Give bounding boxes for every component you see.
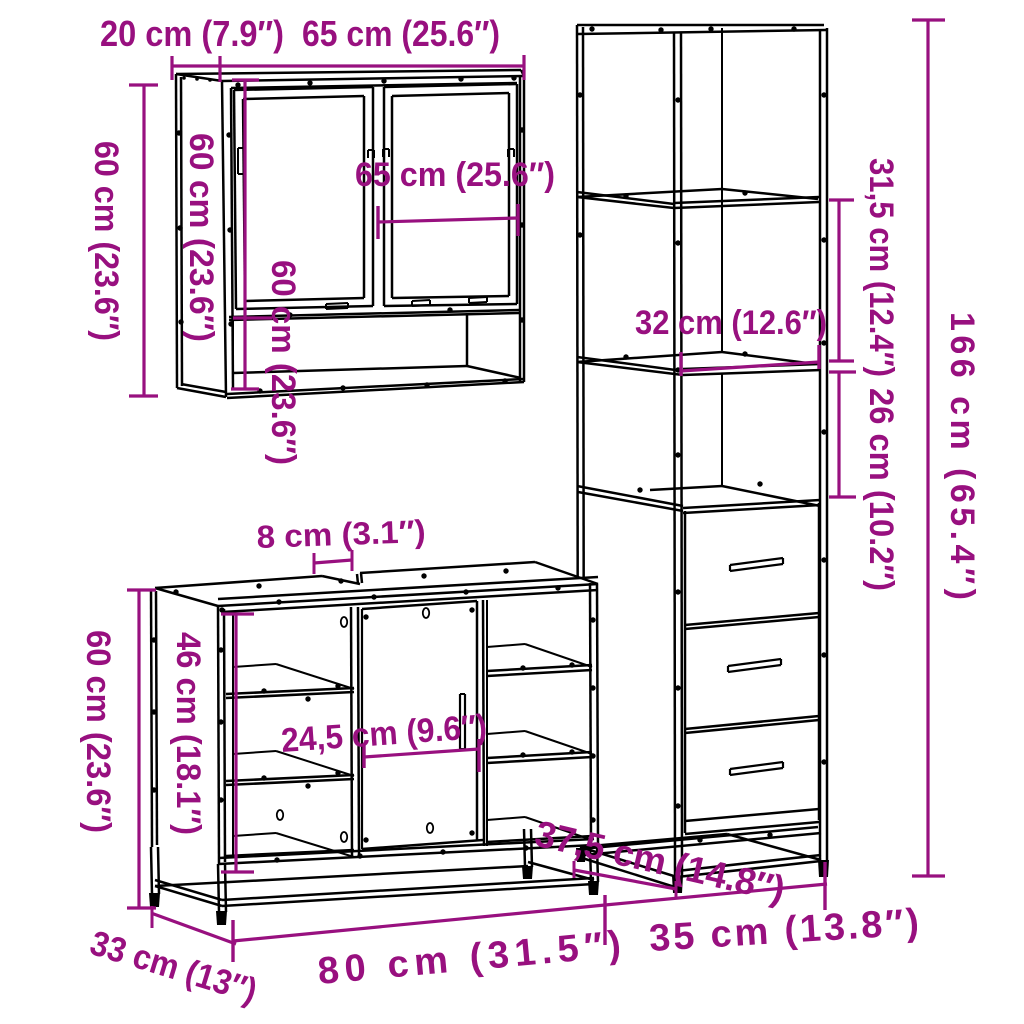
- svg-text:26 cm (10.2″): 26 cm (10.2″): [862, 388, 900, 591]
- svg-text:60 cm (23.6″): 60 cm (23.6″): [264, 260, 302, 465]
- svg-text:60 cm (23.6″): 60 cm (23.6″): [182, 133, 220, 342]
- svg-text:20 cm (7.9″): 20 cm (7.9″): [100, 13, 284, 54]
- svg-text:60 cm (23.6″): 60 cm (23.6″): [87, 141, 125, 341]
- svg-text:65 cm (25.6″): 65 cm (25.6″): [355, 156, 555, 194]
- svg-text:65 cm (25.6″): 65 cm (25.6″): [302, 13, 500, 54]
- svg-text:60 cm (23.6″): 60 cm (23.6″): [79, 630, 117, 833]
- svg-text:31,5 cm (12.4″): 31,5 cm (12.4″): [862, 158, 900, 377]
- svg-text:8 cm (3.1″): 8 cm (3.1″): [256, 513, 426, 555]
- svg-text:32 cm (12.6″): 32 cm (12.6″): [635, 304, 827, 342]
- svg-text:46 cm (18.1″): 46 cm (18.1″): [169, 632, 207, 835]
